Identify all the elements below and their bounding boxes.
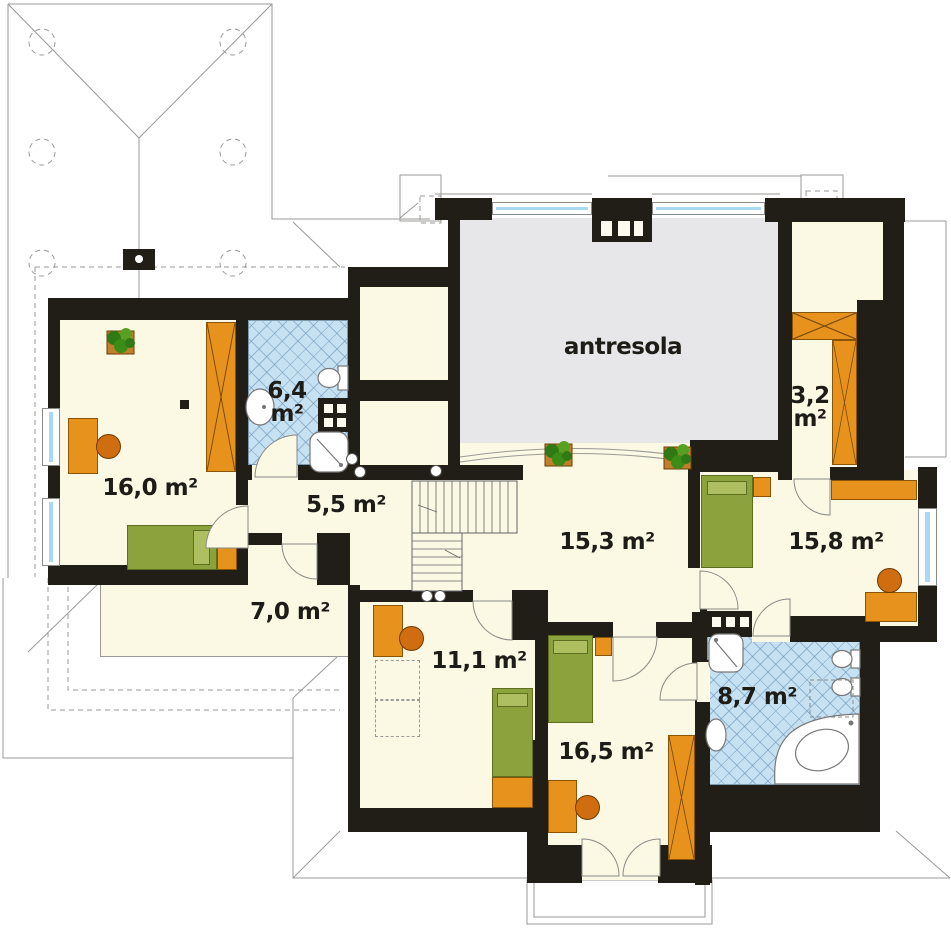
- label-bedroom-left: 16,0 m²: [102, 475, 197, 501]
- arch-lines: [460, 449, 690, 463]
- floor-plan: antresola 16,0 m² 6,4 m² 5,5 m² 15,3 m² …: [0, 0, 951, 928]
- label-bath-upper-unit: m²: [267, 403, 306, 426]
- label-bath-upper: 6,4 m²: [267, 380, 306, 426]
- plan-details: [0, 0, 951, 928]
- label-attic: 7,0 m²: [250, 599, 330, 625]
- plant: [107, 328, 135, 354]
- label-hall: 5,5 m²: [306, 492, 386, 518]
- label-bedroom-right: 15,8 m²: [788, 529, 883, 555]
- toilet: [318, 369, 340, 388]
- plant: [664, 444, 691, 469]
- label-bedroom-bottom-left: 11,1 m²: [431, 648, 526, 674]
- bidet: [832, 679, 852, 696]
- label-antresola: antresola: [564, 334, 682, 360]
- plant: [545, 441, 572, 466]
- label-bedroom-bottom: 16,5 m²: [558, 739, 653, 765]
- label-bath-upper-value: 6,4: [267, 380, 306, 403]
- staircase: [412, 481, 517, 591]
- label-closet: 3,2 m²: [790, 385, 829, 431]
- toilet: [832, 651, 852, 668]
- sink: [706, 719, 726, 751]
- label-bath-lower: 8,7 m²: [717, 684, 797, 710]
- label-landing: 15,3 m²: [559, 529, 654, 555]
- label-closet-unit: m²: [790, 408, 829, 431]
- label-closet-value: 3,2: [790, 385, 829, 408]
- vent-grille: [324, 221, 749, 627]
